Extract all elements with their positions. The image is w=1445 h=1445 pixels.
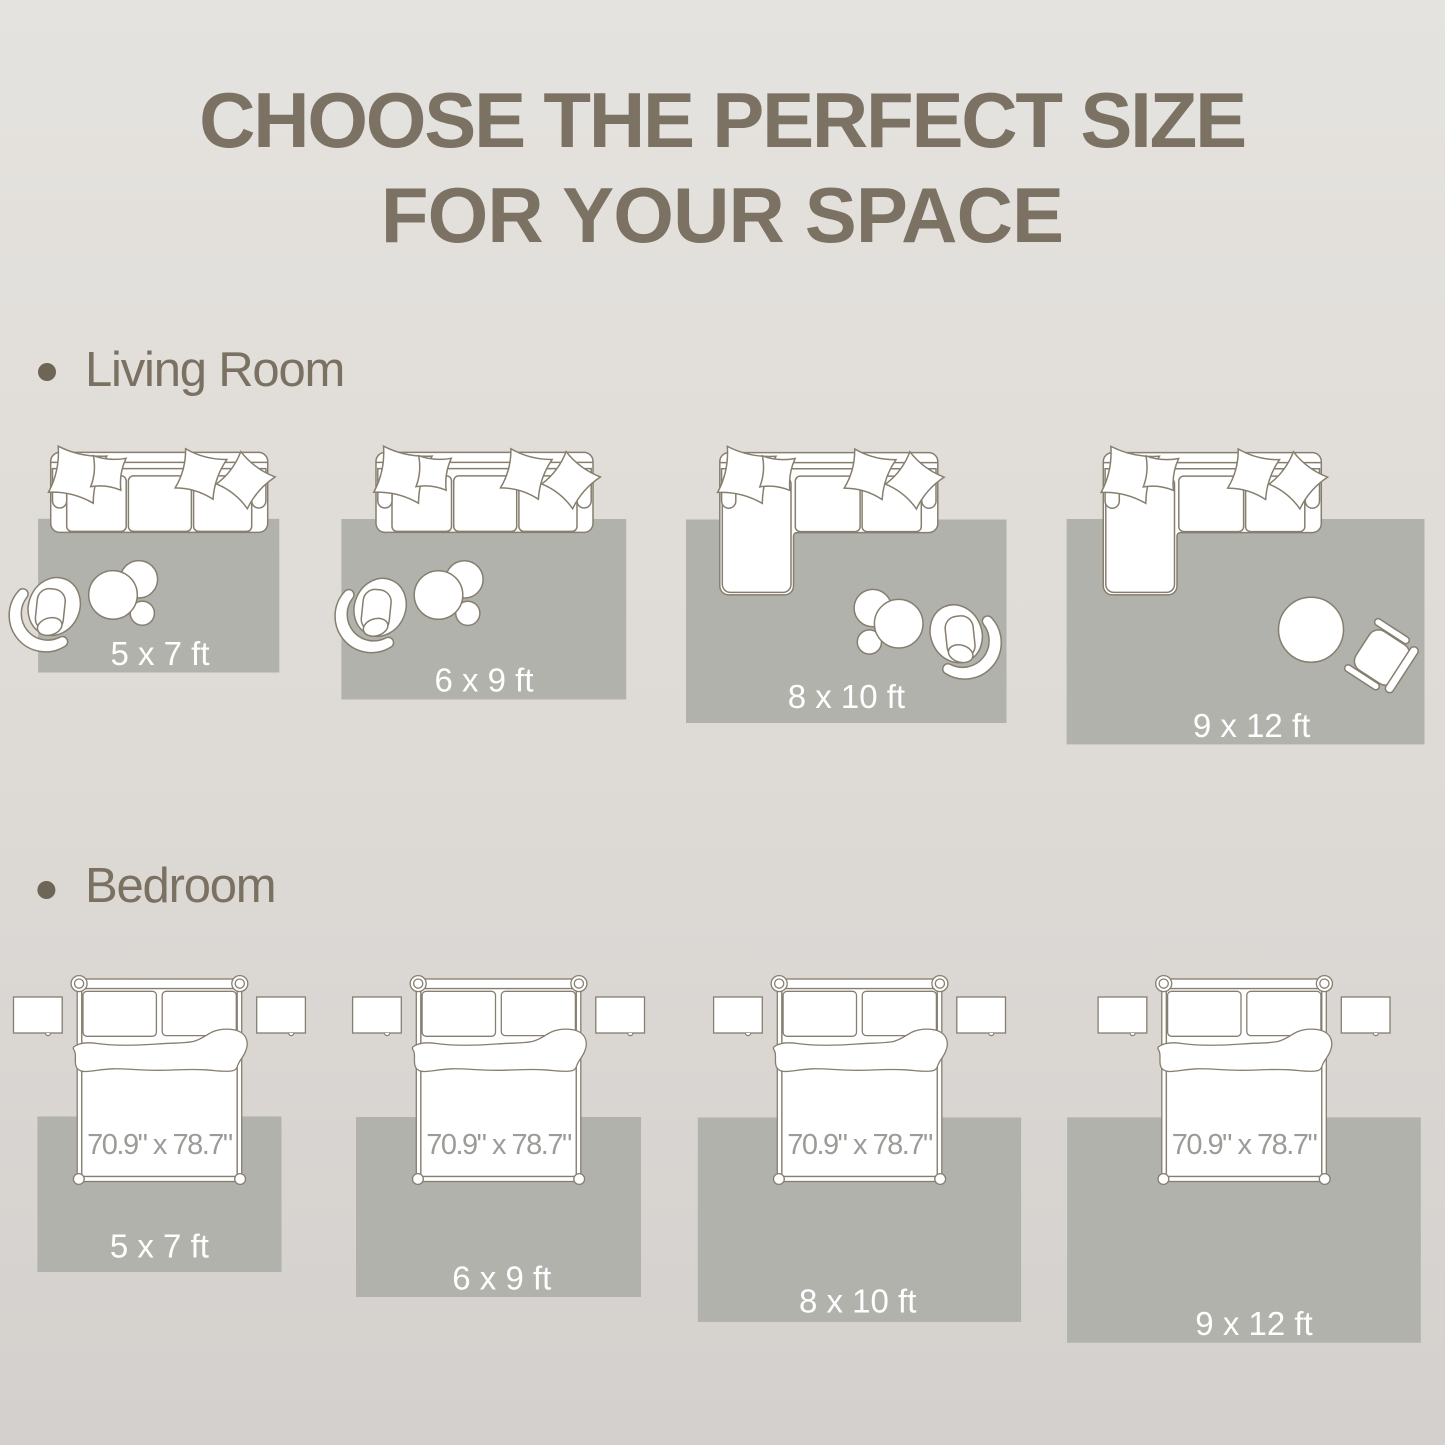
svg-text:70.9" x 78.7": 70.9" x 78.7" bbox=[87, 1129, 233, 1161]
svg-text:70.9" x 78.7": 70.9" x 78.7" bbox=[426, 1129, 572, 1161]
svg-text:9 x 12 ft: 9 x 12 ft bbox=[1195, 1305, 1312, 1342]
svg-text:70.9" x 78.7": 70.9" x 78.7" bbox=[787, 1129, 933, 1161]
svg-text:Living Room: Living Room bbox=[85, 343, 344, 397]
svg-text:6 x 9 ft: 6 x 9 ft bbox=[434, 662, 533, 699]
svg-text:5 x 7 ft: 5 x 7 ft bbox=[110, 1228, 209, 1265]
svg-text:70.9" x 78.7": 70.9" x 78.7" bbox=[1172, 1129, 1318, 1161]
svg-text:6 x 9 ft: 6 x 9 ft bbox=[452, 1260, 551, 1297]
svg-text:5 x 7 ft: 5 x 7 ft bbox=[110, 635, 209, 672]
svg-text:9 x 12 ft: 9 x 12 ft bbox=[1193, 707, 1310, 744]
svg-text:Bedroom: Bedroom bbox=[85, 859, 275, 913]
svg-text:FOR YOUR SPACE: FOR YOUR SPACE bbox=[381, 171, 1063, 259]
svg-text:8 x 10 ft: 8 x 10 ft bbox=[799, 1282, 916, 1319]
svg-text:8 x 10 ft: 8 x 10 ft bbox=[788, 678, 905, 715]
svg-text:CHOOSE THE PERFECT SIZE: CHOOSE THE PERFECT SIZE bbox=[199, 76, 1245, 164]
